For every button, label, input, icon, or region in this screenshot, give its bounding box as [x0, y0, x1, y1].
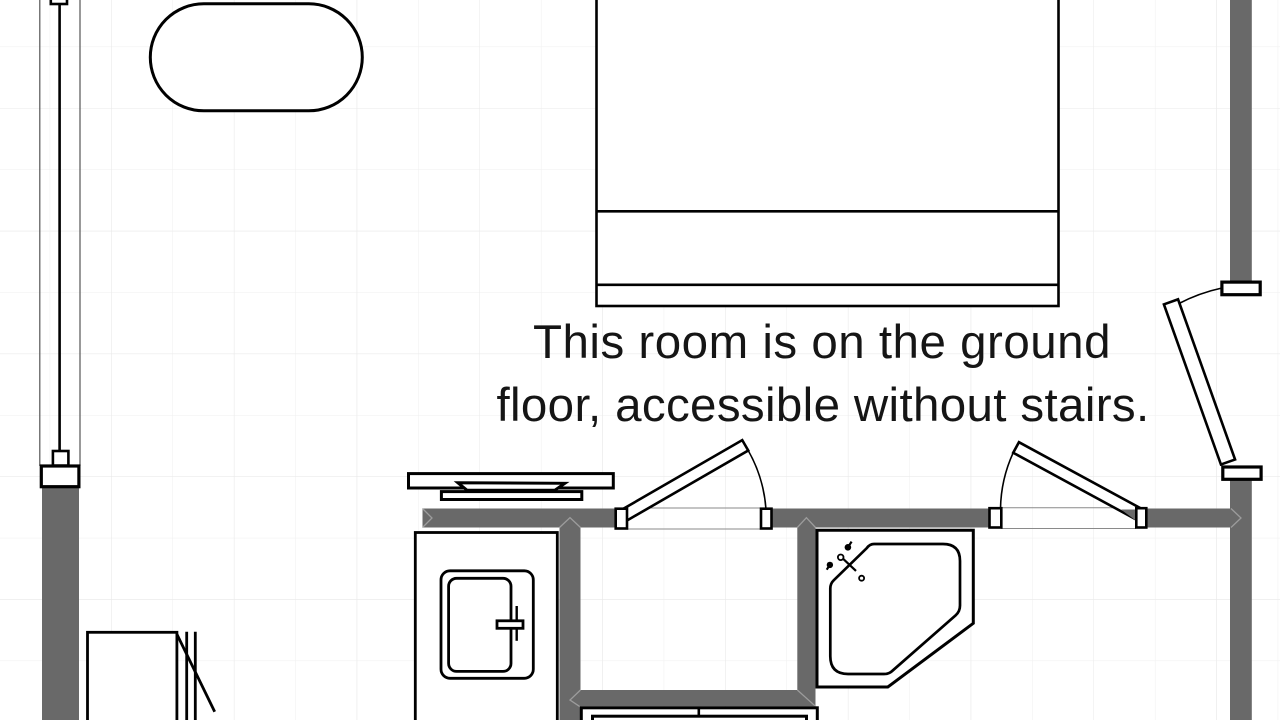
svg-text:floor, accessible without stai: floor, accessible without stairs. — [496, 379, 1149, 432]
svg-text:This room is on the ground: This room is on the ground — [533, 316, 1111, 369]
